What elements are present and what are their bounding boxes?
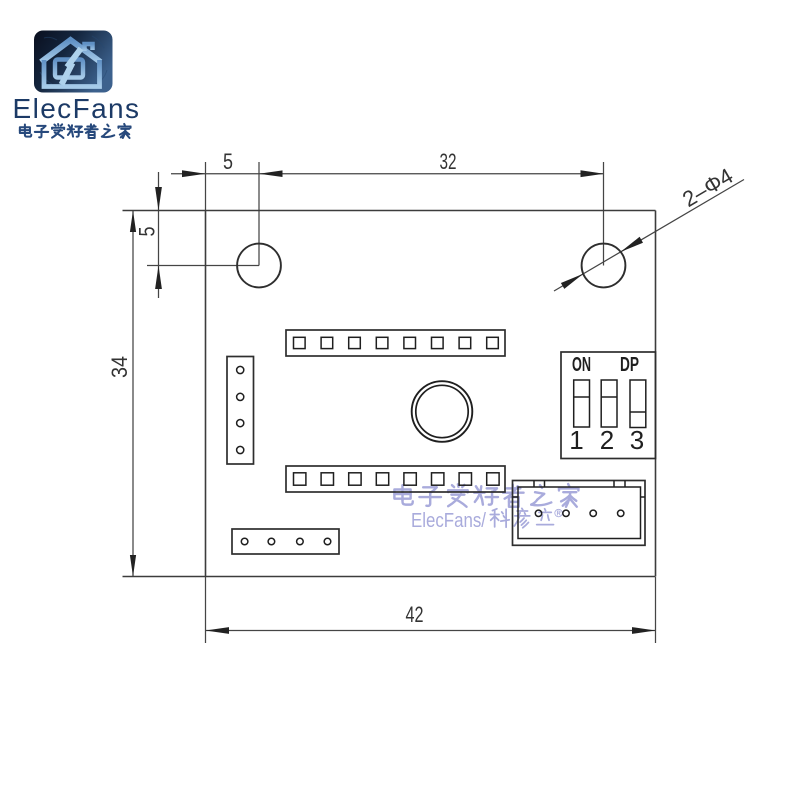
svg-text:3: 3 xyxy=(630,425,644,455)
svg-text:5: 5 xyxy=(223,149,233,174)
svg-text:ElecFans/: ElecFans/ xyxy=(411,510,486,532)
svg-text:5: 5 xyxy=(135,227,160,237)
svg-text:DP: DP xyxy=(620,354,639,376)
svg-text:ON: ON xyxy=(572,354,591,376)
svg-text:1: 1 xyxy=(569,425,583,455)
svg-text:32: 32 xyxy=(440,149,457,174)
svg-text:34: 34 xyxy=(107,356,132,378)
svg-text:42: 42 xyxy=(406,602,424,627)
svg-text:ElecFans: ElecFans xyxy=(13,93,141,124)
svg-text:2: 2 xyxy=(600,425,614,455)
